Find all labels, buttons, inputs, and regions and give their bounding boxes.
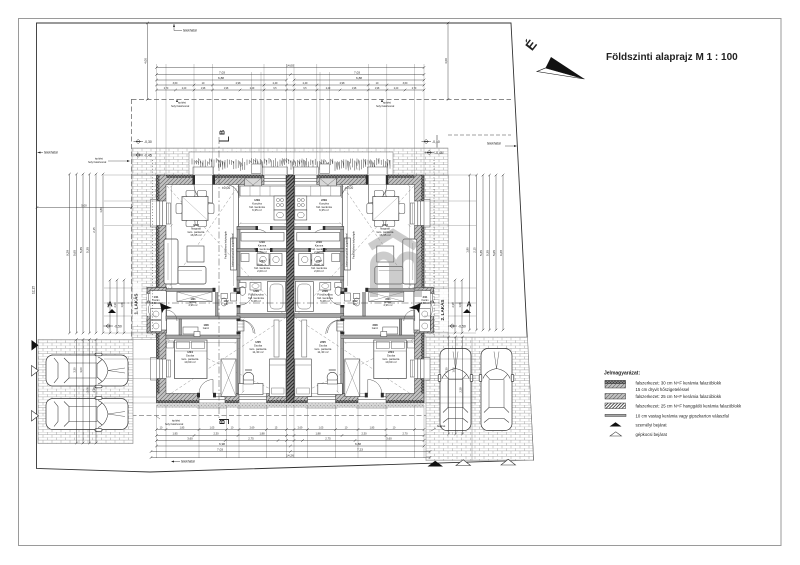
svg-text:15 cm dryvit hőszigeteléssel: 15 cm dryvit hőszigeteléssel (636, 387, 690, 392)
svg-text:11,30 m²: 11,30 m² (252, 350, 263, 354)
svg-text:építési: építési (172, 419, 180, 423)
svg-text:B: B (220, 419, 227, 424)
svg-text:1,95: 1,95 (172, 432, 178, 436)
svg-text:6,28: 6,28 (499, 250, 503, 256)
svg-text:9,28: 9,28 (66, 250, 70, 256)
svg-text:1,06: 1,06 (458, 302, 462, 308)
svg-text:12,15: 12,15 (32, 286, 36, 294)
svg-text:2,30: 2,30 (106, 302, 110, 308)
svg-text:hely határvonal: hely határvonal (171, 104, 190, 108)
svg-text:5,35: 5,35 (79, 247, 83, 253)
svg-text:1,98: 1,98 (224, 88, 229, 90)
svg-text:7,03: 7,03 (217, 448, 223, 452)
svg-text:2,00 m²: 2,00 m² (314, 269, 324, 273)
svg-text:falszerkezet: 25 cm N+F hanggá: falszerkezet: 25 cm N+F hanggátló kerámi… (636, 404, 743, 409)
svg-text:bejárat: bejárat (437, 424, 445, 428)
svg-text:2,49: 2,49 (326, 88, 331, 90)
svg-text:5,35: 5,35 (86, 247, 90, 253)
svg-text:B: B (220, 130, 227, 135)
svg-text:falszerkezet: 25 cm N+F kerámi: falszerkezet: 25 cm N+F kerámia falazóbl… (636, 394, 722, 399)
svg-text:2,75: 2,75 (248, 437, 254, 441)
svg-text:5,28 m²: 5,28 m² (320, 299, 330, 303)
svg-text:2,98: 2,98 (340, 82, 345, 85)
svg-text:építési: építési (178, 101, 186, 105)
svg-text:építési: építési (383, 101, 391, 105)
svg-text:1,60 m²: 1,60 m² (421, 302, 430, 305)
svg-text:2,69: 2,69 (250, 427, 255, 430)
svg-text:-0,46: -0,46 (435, 151, 443, 155)
svg-text:2,70: 2,70 (402, 432, 408, 436)
svg-text:3,60: 3,60 (403, 82, 408, 85)
svg-text:10 cm vastag kerámia vagy gips: 10 cm vastag kerámia vagy gipszkarton vá… (636, 414, 729, 419)
svg-text:2,30: 2,30 (445, 367, 449, 373)
svg-text:Padlófűtéses helyiségek: Padlófűtéses helyiségek (352, 230, 356, 259)
svg-text:WC: WC (353, 302, 357, 306)
svg-text:16,95 m²: 16,95 m² (379, 233, 390, 237)
svg-text:6,35 m²: 6,35 m² (319, 208, 329, 212)
svg-text:5,35: 5,35 (486, 250, 490, 256)
svg-text:2,30: 2,30 (451, 302, 455, 308)
svg-text:telekhatár: telekhatár (183, 29, 198, 33)
svg-text:2. LAKÁS: 2. LAKÁS (439, 300, 445, 321)
svg-text:A: A (466, 302, 471, 309)
svg-text:2,69: 2,69 (298, 427, 303, 430)
svg-text:1,85: 1,85 (370, 427, 375, 430)
svg-text:hely határvonal: hely határvonal (165, 422, 184, 426)
svg-text:1,88: 1,88 (259, 432, 265, 436)
svg-text:hely határvonal: hely határvonal (376, 104, 395, 108)
svg-text:5,00: 5,00 (81, 204, 87, 208)
svg-text:betonozott padlók szigetelésse: betonozott padlók szigeteléssel (346, 233, 349, 267)
svg-text:Gard.: Gard. (372, 326, 379, 330)
svg-text:±0,00: ±0,00 (345, 186, 353, 190)
svg-text:1,06: 1,06 (120, 302, 124, 308)
svg-text:2,00 m²: 2,00 m² (257, 250, 267, 254)
svg-text:4,00: 4,00 (144, 58, 148, 64)
svg-text:2,30: 2,30 (113, 302, 117, 308)
svg-text:6,35 m²: 6,35 m² (252, 208, 262, 212)
svg-text:1. LAKÁS: 1. LAKÁS (133, 294, 139, 315)
svg-text:2,75: 2,75 (325, 437, 331, 441)
svg-text:1,60 m²: 1,60 m² (152, 302, 161, 305)
svg-text:5,65: 5,65 (492, 250, 496, 256)
svg-text:3,00: 3,00 (79, 367, 83, 373)
svg-text:5,35: 5,35 (479, 250, 483, 256)
svg-text:10,60 m²: 10,60 m² (184, 360, 195, 364)
svg-text:2,15: 2,15 (92, 227, 96, 233)
svg-text:4,00: 4,00 (444, 58, 448, 64)
svg-text:1,06: 1,06 (452, 367, 456, 373)
svg-text:2,96 m²: 2,96 m² (383, 303, 392, 307)
svg-text:-0,45: -0,45 (144, 153, 152, 157)
svg-text:építési: építési (95, 157, 103, 161)
svg-text:2,20: 2,20 (182, 88, 187, 90)
svg-text:2,70: 2,70 (412, 88, 417, 90)
svg-text:3,06: 3,06 (86, 387, 90, 393)
svg-text:-0,50: -0,50 (432, 140, 440, 144)
svg-text:2,00 m²: 2,00 m² (257, 269, 267, 273)
svg-text:1,98: 1,98 (201, 88, 206, 90)
svg-text:1,98: 1,98 (375, 88, 380, 90)
svg-text:10,60 m²: 10,60 m² (385, 360, 396, 364)
svg-text:2,70: 2,70 (164, 88, 169, 90)
svg-text:2,30: 2,30 (213, 432, 219, 436)
svg-text:7,03: 7,03 (354, 71, 360, 75)
svg-text:±0,00: ±0,00 (222, 186, 230, 190)
svg-text:1,85: 1,85 (180, 427, 185, 430)
svg-text:2,30: 2,30 (361, 432, 367, 436)
svg-text:Jelmagyarázat:: Jelmagyarázat: (604, 371, 640, 377)
svg-text:2,38: 2,38 (459, 387, 463, 393)
svg-text:2,49: 2,49 (303, 82, 308, 85)
svg-text:telekhatár: telekhatár (44, 151, 59, 155)
svg-text:hely határvonal: hely határvonal (88, 160, 107, 164)
svg-text:-0,50: -0,50 (458, 324, 466, 328)
svg-text:1,05: 1,05 (210, 427, 215, 430)
svg-text:7,03: 7,03 (219, 71, 225, 75)
svg-text:3,30: 3,30 (73, 367, 77, 373)
svg-text:2,38: 2,38 (92, 387, 96, 393)
svg-text:2,15: 2,15 (473, 247, 477, 253)
svg-text:2,96 m²: 2,96 m² (188, 303, 197, 307)
svg-text:2,00 m²: 2,00 m² (314, 250, 324, 254)
svg-text:6,98: 6,98 (219, 442, 225, 446)
svg-text:5,65: 5,65 (73, 250, 77, 256)
svg-text:6,88: 6,88 (355, 442, 361, 446)
svg-text:WC: WC (224, 302, 228, 306)
svg-text:Padlófűtéses helyiségek: Padlófűtéses helyiségek (224, 230, 228, 259)
svg-text:14,00: 14,00 (286, 64, 294, 68)
svg-text:2,98: 2,98 (236, 82, 241, 85)
svg-text:2,49: 2,49 (250, 88, 255, 90)
svg-text:11,30 m²: 11,30 m² (317, 350, 328, 354)
svg-text:3,60: 3,60 (386, 437, 392, 441)
svg-text:16,95 m²: 16,95 m² (190, 233, 201, 237)
svg-text:3,60: 3,60 (187, 437, 193, 441)
svg-text:Gard.: Gard. (203, 326, 210, 330)
svg-text:Földszinti alaprajz M 1 : 100: Földszinti alaprajz M 1 : 100 (606, 52, 738, 63)
svg-text:személyi bejárat: személyi bejárat (636, 423, 668, 428)
svg-text:-0,30: -0,30 (144, 140, 152, 144)
svg-text:2,49: 2,49 (273, 82, 278, 85)
svg-text:2,20: 2,20 (394, 88, 399, 90)
svg-text:gépkocsi bejárat: gépkocsi bejárat (636, 432, 668, 437)
svg-text:falszerkezet: 30 cm N+F kerámi: falszerkezet: 30 cm N+F kerámia falazóbl… (636, 381, 722, 386)
svg-text:1,88: 1,88 (315, 432, 321, 436)
svg-text:1,98: 1,98 (352, 88, 357, 90)
svg-text:6,88: 6,88 (218, 76, 224, 80)
svg-text:14,26: 14,26 (286, 454, 294, 458)
svg-text:1,80: 1,80 (99, 207, 103, 213)
svg-text:3,60: 3,60 (173, 82, 178, 85)
svg-text:7,23: 7,23 (357, 448, 363, 452)
svg-text:5,28 m²: 5,28 m² (251, 299, 261, 303)
svg-text:-0,50: -0,50 (114, 324, 122, 328)
svg-text:telekhatár: telekhatár (181, 460, 196, 464)
svg-text:telekhatár: telekhatár (487, 142, 502, 146)
svg-text:betonozott padlók szigetelésse: betonozott padlók szigeteléssel (232, 233, 235, 267)
svg-text:1,80: 1,80 (466, 247, 470, 253)
svg-text:6,88: 6,88 (356, 76, 362, 80)
svg-text:1,05: 1,05 (319, 427, 324, 430)
